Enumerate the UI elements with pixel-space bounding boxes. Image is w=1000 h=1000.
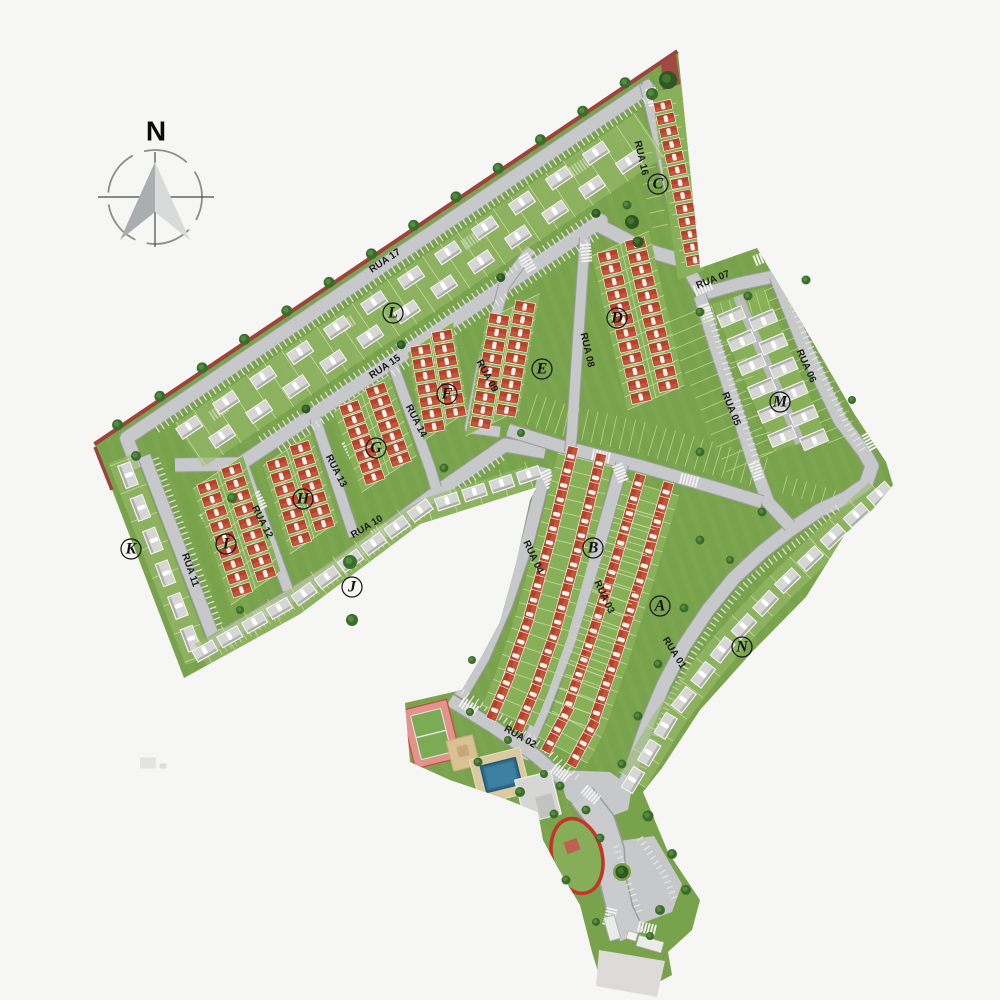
svg-text:M: M [772, 394, 788, 411]
svg-text:J: J [347, 579, 357, 596]
svg-text:N: N [146, 115, 166, 146]
svg-text:B: B [587, 540, 599, 557]
svg-text:A: A [654, 598, 666, 615]
svg-text:I: I [222, 536, 230, 553]
svg-text:H: H [296, 491, 310, 508]
svg-text:G: G [370, 440, 382, 457]
svg-text:C: C [653, 176, 664, 193]
svg-text:D: D [610, 310, 623, 327]
svg-text:F: F [441, 386, 453, 403]
svg-text:L: L [387, 305, 398, 322]
svg-text:N: N [735, 639, 749, 656]
svg-text:E: E [536, 361, 548, 378]
svg-text:K: K [125, 541, 138, 558]
